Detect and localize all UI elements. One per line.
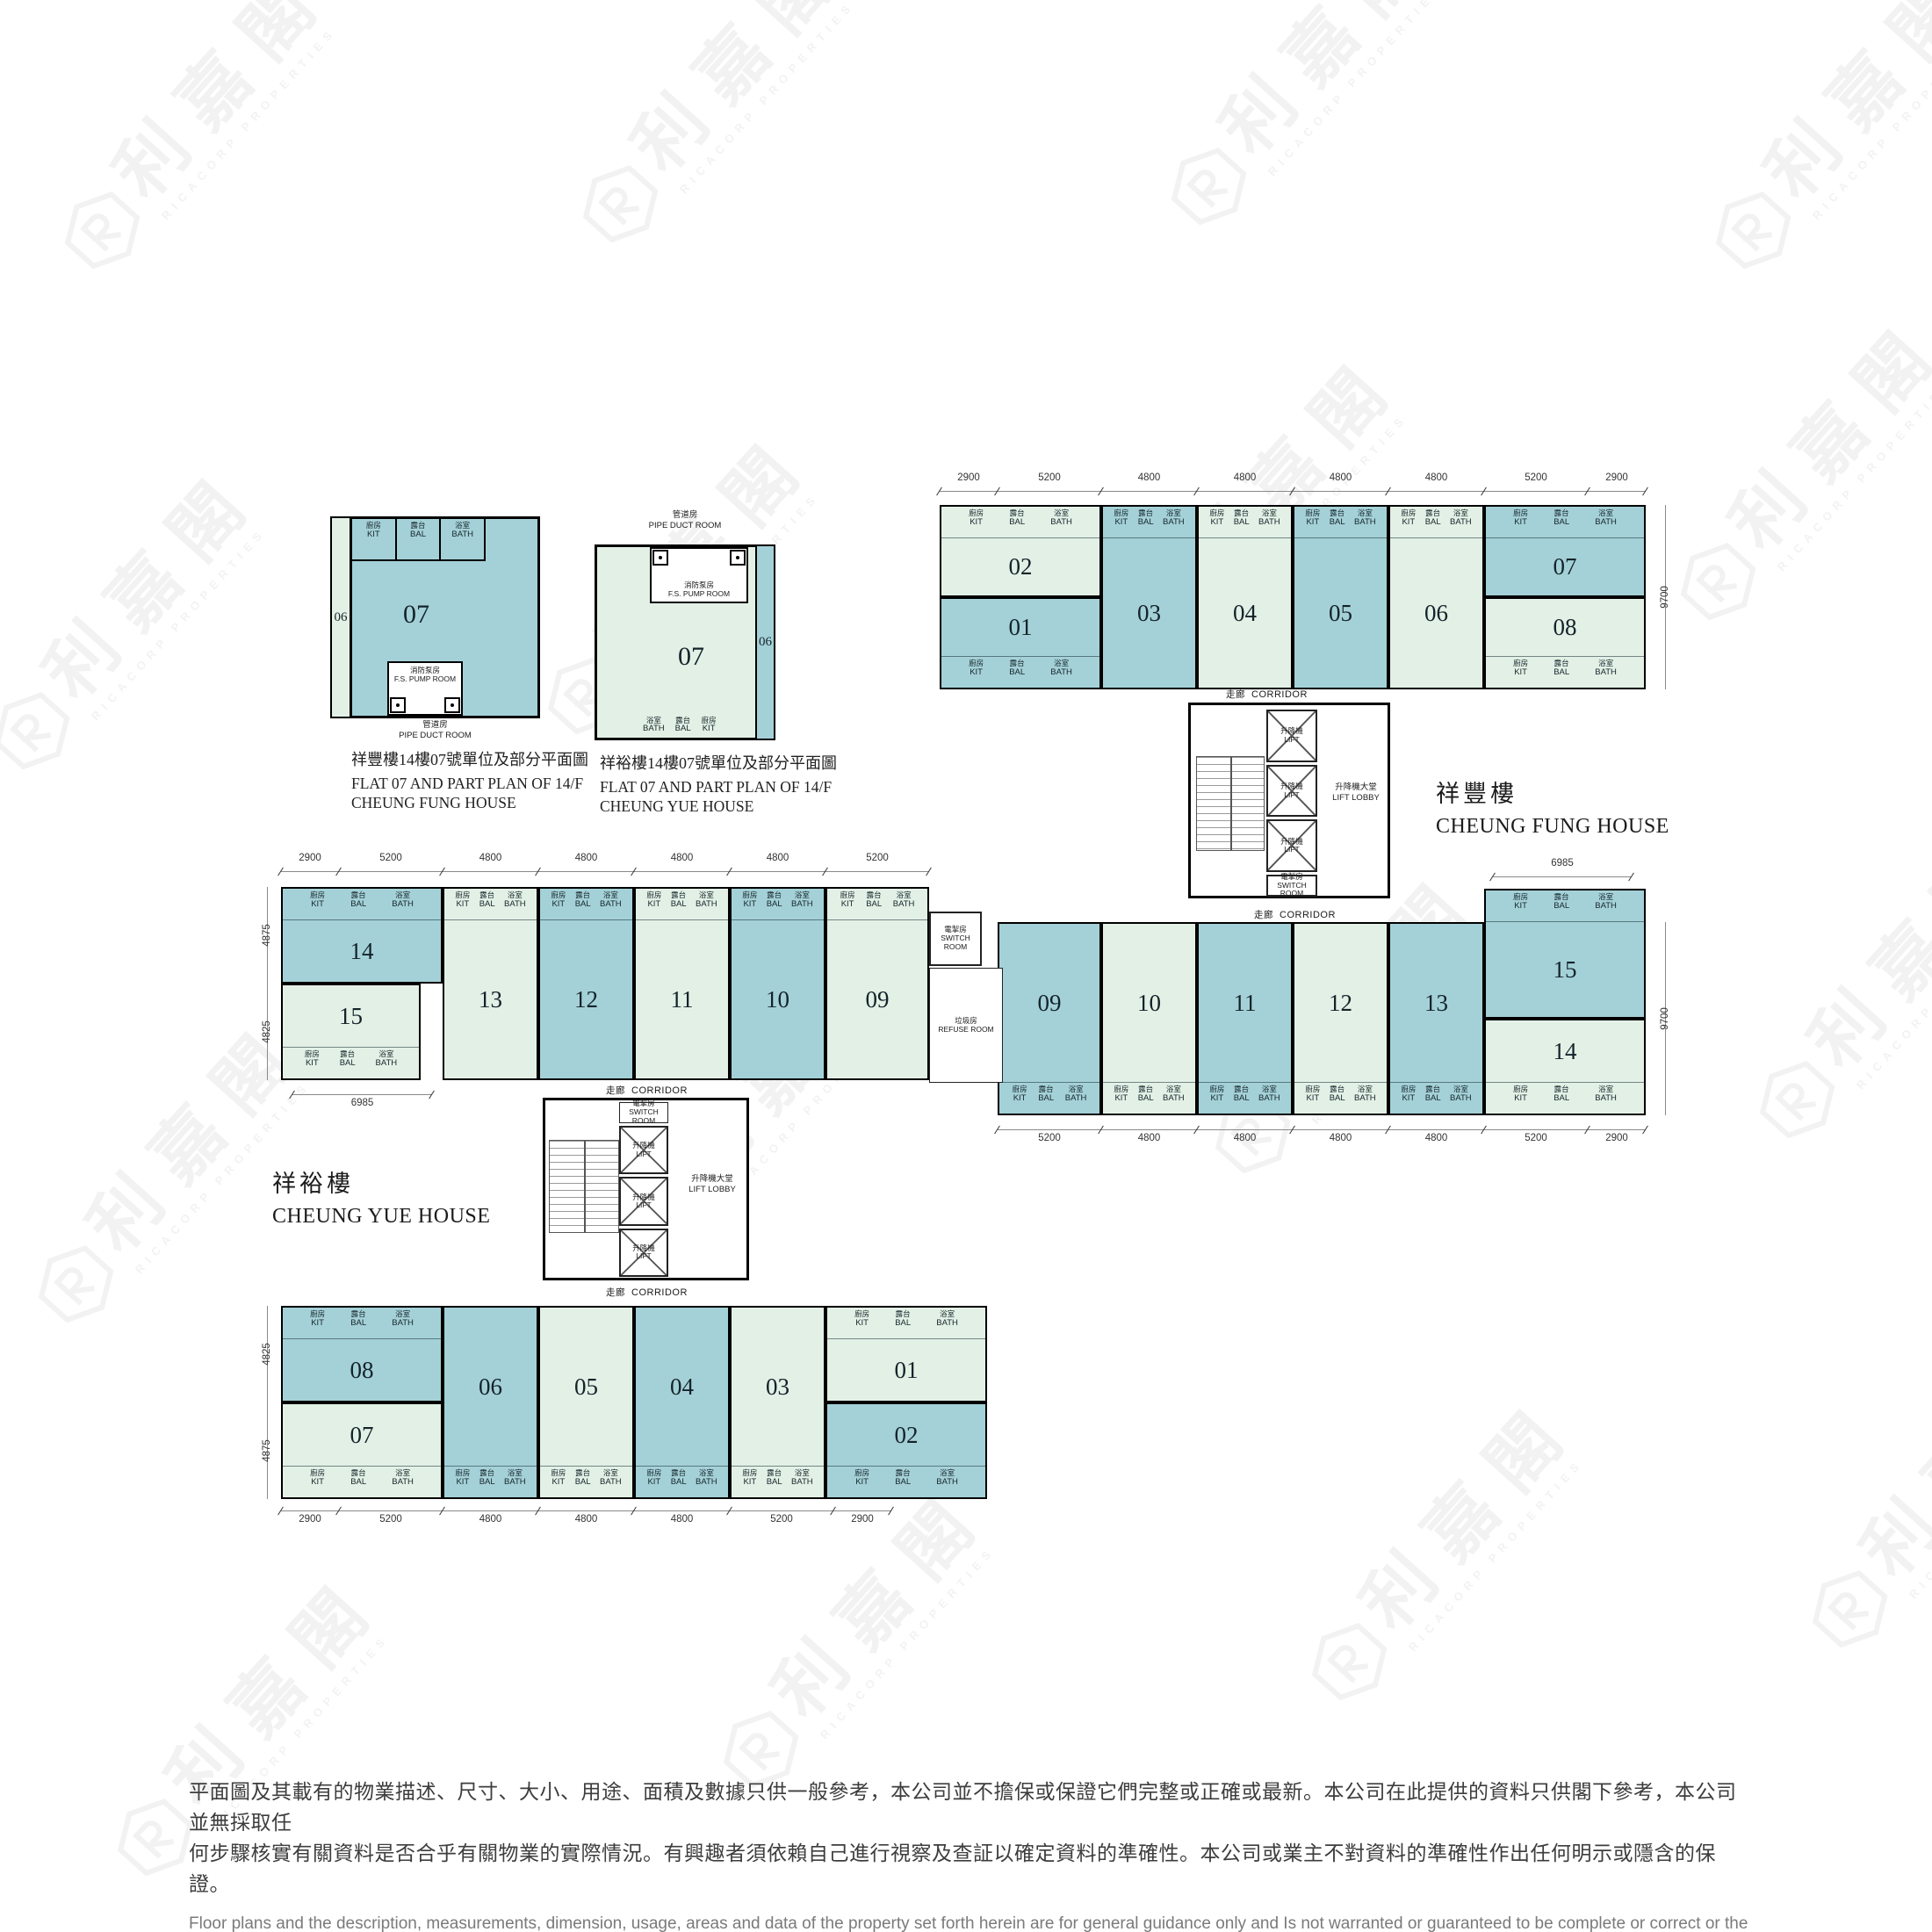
room-label-kit: 廚房KIT (455, 891, 470, 909)
pipe-duct (652, 550, 668, 566)
staircase (549, 1140, 619, 1233)
dimension-segment: 4800 (634, 1503, 730, 1517)
cyh-units-row-09-15: 廚房KIT露台BAL浴室BATH1415廚房KIT露台BAL浴室BATH廚房KI… (281, 887, 929, 1080)
room-label-bal: 露台BAL (1554, 1085, 1569, 1103)
room-label-bath: 浴室BATH (1065, 1085, 1087, 1103)
dimension-left: 4875 (260, 887, 274, 984)
bal-label: 露台BAL (410, 522, 426, 539)
dimension-segment: 5200 (1484, 484, 1588, 498)
unit-14: 14廚房KIT露台BAL浴室BATH (1484, 1019, 1646, 1115)
switch-room: 電掣房SWITCH ROOM (619, 1102, 668, 1123)
dimension-segment: 2900 (281, 1503, 339, 1517)
watermark-latin: RICACORP PROPERTIES (89, 507, 285, 723)
service-band: 廚房KIT 露台BAL 浴室BATH (352, 519, 486, 561)
unit-number: 04 (636, 1308, 728, 1466)
room-label-bath: 浴室BATH (1050, 509, 1072, 527)
unit-number: 11 (1199, 924, 1291, 1082)
room-label-kit: 廚房KIT (742, 1469, 757, 1487)
room-label-bath: 浴室BATH (504, 891, 526, 909)
dimension-segment: 4800 (634, 864, 730, 878)
watermark-latin: RICACORP PROPERTIES (1854, 876, 1932, 1092)
room-label-bath: 浴室BATH (696, 891, 717, 909)
room-label-bath: 浴室BATH (1163, 509, 1185, 527)
watermark-cjk: 利嘉閣 (32, 456, 271, 710)
unit-12: 廚房KIT露台BAL浴室BATH12 (538, 887, 634, 1080)
dimension-segment: 5200 (998, 1122, 1101, 1136)
watermark-cjk: 利嘉閣 (1719, 306, 1932, 561)
unit-10: 10廚房KIT露台BAL浴室BATH (1101, 922, 1197, 1115)
dimension-right: 9700 (1658, 922, 1672, 1115)
partial-plan-cheung-fung: 06 廚房KIT 露台BAL 浴室BATH 07 消防泵房 F.S. PUMP … (330, 516, 540, 718)
balcony-service-strip: 廚房KIT露台BAL浴室BATH (540, 889, 632, 920)
pipe-duct (730, 550, 746, 566)
unit-11: 11廚房KIT露台BAL浴室BATH (1197, 922, 1293, 1115)
unit-number: 15 (283, 985, 419, 1047)
dimension-string: 5200480048004800480052002900 (998, 1122, 1646, 1136)
unit-02: 02廚房KIT露台BAL浴室BATH (825, 1402, 987, 1499)
room-label-bath: 浴室BATH (392, 1310, 414, 1328)
watermark-cjk: 利嘉閣 (1754, 0, 1932, 210)
dimension-segment: 2900 (281, 864, 339, 878)
unit-number: 02 (941, 538, 1099, 595)
room-label-kit: 廚房KIT (1401, 1085, 1416, 1103)
dimension-segment: 2900 (940, 484, 998, 498)
lift-label: 升降機LIFT (1268, 711, 1316, 761)
room-label-kit: 廚房KIT (1305, 1085, 1320, 1103)
ricacorp-logo-icon (567, 150, 674, 256)
unit-08: 08廚房KIT露台BAL浴室BATH (1484, 597, 1646, 689)
corridor-label: 走廊CORRIDOR (1254, 908, 1336, 921)
dimension-segment: 2900 (833, 1503, 891, 1517)
unit-05: 廚房KIT露台BAL浴室BATH05 (1293, 505, 1388, 689)
unit-05: 05廚房KIT露台BAL浴室BATH (538, 1306, 634, 1499)
dimension-segment: 5200 (339, 1503, 443, 1517)
room-label-bal: 露台BAL (1038, 1085, 1054, 1103)
balcony-service-strip: 廚房KIT露台BAL浴室BATH (1199, 1082, 1291, 1114)
disclaimer-zh-line: 何步驟核實有關資料是否合乎有關物業的實際情況。有興趣者須依賴自己進行視察及查証以… (189, 1838, 1750, 1900)
unit-number: 12 (1294, 924, 1387, 1082)
room-label-bath: 浴室BATH (1595, 509, 1617, 527)
balcony-service-strip: 廚房KIT露台BAL浴室BATH (827, 1308, 985, 1339)
bath-label: 浴室BATH (643, 717, 665, 734)
room-label-bath: 浴室BATH (1450, 509, 1472, 527)
room-label-bal: 露台BAL (575, 1469, 591, 1487)
dimension-segment: 4800 (1197, 484, 1293, 498)
room-label-bath: 浴室BATH (936, 1469, 958, 1487)
corridor-label: 走廊CORRIDOR (606, 1286, 688, 1299)
room-label-kit: 廚房KIT (305, 1050, 320, 1068)
balcony-service-strip: 廚房KIT露台BAL浴室BATH (444, 889, 537, 920)
balcony-service-strip: 廚房KIT露台BAL浴室BATH (1486, 1082, 1644, 1114)
unit-number: 12 (540, 920, 632, 1078)
balcony-service-strip: 廚房KIT露台BAL浴室BATH (540, 1466, 632, 1497)
watermark-logo: 利嘉閣RICACORP PROPERTIES (1150, 0, 1462, 244)
room-label-bal: 露台BAL (895, 1310, 911, 1328)
watermark-logo: 利嘉閣RICACORP PROPERTIES (1791, 1334, 1932, 1666)
room-label-bal: 露台BAL (671, 891, 687, 909)
watermark-cjk: 利嘉閣 (1209, 0, 1448, 166)
unit-number: 06 (1390, 538, 1482, 688)
dimension-segment: 4800 (1101, 484, 1197, 498)
lift-shaft: 升降機LIFT (619, 1126, 668, 1174)
bath-label: 浴室BATH (451, 522, 473, 539)
dimension-segment: 5200 (998, 484, 1101, 498)
watermark-latin: RICACORP PROPERTIES (1907, 1385, 1932, 1601)
unit-number: 14 (283, 920, 441, 982)
room-label-kit: 廚房KIT (646, 1469, 661, 1487)
balcony-service-strip: 廚房KIT露台BAL浴室BATH (283, 1047, 419, 1078)
lift-shaft: 升降機LIFT (1266, 819, 1317, 872)
room-label-kit: 廚房KIT (969, 660, 984, 677)
room-label-bath: 浴室BATH (1595, 1085, 1617, 1103)
room-label-bal: 露台BAL (1138, 509, 1154, 527)
unit-number: 04 (1199, 538, 1291, 688)
unit-number: 13 (444, 920, 537, 1078)
room-label-bath: 浴室BATH (1050, 660, 1072, 677)
dimension-string: 6985 (1493, 869, 1632, 883)
room-label-kit: 廚房KIT (1209, 509, 1224, 527)
unit-06-sliver: 06 (330, 516, 351, 718)
room-label-bath: 浴室BATH (600, 891, 622, 909)
lift-label: 升降機LIFT (1268, 821, 1316, 870)
room-label-bath: 浴室BATH (392, 1469, 414, 1487)
unit-13: 13廚房KIT露台BAL浴室BATH (1388, 922, 1484, 1115)
room-label-bath: 浴室BATH (893, 891, 915, 909)
caption-cheung-yue-partial: 祥裕樓14樓07號單位及部分平面圖 FLAT 07 AND PART PLAN … (600, 751, 854, 816)
ricacorp-logo-icon (1797, 1555, 1903, 1662)
room-label-bath: 浴室BATH (504, 1469, 526, 1487)
unit-07: 07廚房KIT露台BAL浴室BATH (281, 1402, 443, 1499)
floor-plan-sheet: 利嘉閣RICACORP PROPERTIES利嘉閣RICACORP PROPER… (0, 0, 1932, 1932)
staircase (1196, 756, 1265, 851)
corridor-label: 走廊CORRIDOR (606, 1084, 688, 1097)
ricacorp-logo-icon (1700, 177, 1806, 283)
dimension-segment: 5200 (825, 864, 929, 878)
pipe-duct (390, 697, 406, 713)
balcony-service-strip: 廚房KIT露台BAL浴室BATH (732, 1466, 824, 1497)
room-label-bath: 浴室BATH (600, 1469, 622, 1487)
unit-number: 01 (827, 1339, 985, 1401)
room-label-kit: 廚房KIT (1114, 1085, 1128, 1103)
dimension-string: 29005200480048004800480052002900 (940, 484, 1646, 498)
watermark-logo: 利嘉閣RICACORP PROPERTIES (44, 0, 356, 288)
dimension-left: 4825 (260, 984, 274, 1080)
unit-number: 11 (636, 920, 728, 1078)
unit-06-sliver: 06 (755, 544, 775, 740)
room-label-bath: 浴室BATH (1450, 1085, 1472, 1103)
room-label-bath: 浴室BATH (936, 1310, 958, 1328)
watermark-cjk: 利嘉閣 (1798, 825, 1932, 1079)
disclaimer: 平面圖及其載有的物業描述、尺寸、大小、用途、面積及數據只供一般參考，本公司並不擔… (189, 1777, 1750, 1932)
unit-number: 08 (1486, 599, 1644, 656)
unit-number: 03 (1103, 538, 1195, 688)
unit-number: 13 (1390, 924, 1482, 1082)
balcony-service-strip: 廚房KIT露台BAL浴室BATH (999, 1082, 1099, 1114)
room-label-bal: 露台BAL (1554, 893, 1569, 911)
room-label-kit: 廚房KIT (310, 1469, 325, 1487)
unit-10: 廚房KIT露台BAL浴室BATH10 (730, 887, 825, 1080)
watermark-latin: RICACORP PROPERTIES (1810, 6, 1932, 222)
cfh-units-row-01-08: 廚房KIT露台BAL浴室BATH0201廚房KIT露台BAL浴室BATH廚房KI… (940, 505, 1646, 689)
balcony-service-strip: 廚房KIT露台BAL浴室BATH (636, 1466, 728, 1497)
room-label-bal: 露台BAL (895, 1469, 911, 1487)
unit-14: 廚房KIT露台BAL浴室BATH14 (281, 887, 443, 984)
unit-number: 07 (1486, 538, 1644, 595)
ricacorp-logo-icon (1156, 133, 1262, 239)
dimension-segment: 4800 (1293, 484, 1388, 498)
lift-label: 升降機LIFT (1268, 767, 1316, 816)
building-name-cheung-fung: 祥豐樓 CHEUNG FUNG HOUSE (1436, 775, 1669, 839)
room-label-bath: 浴室BATH (376, 1050, 398, 1068)
watermark-cjk: 利嘉閣 (621, 0, 860, 184)
lift-shaft: 升降機LIFT (619, 1229, 668, 1277)
lift-shaft: 升降機LIFT (1266, 710, 1317, 762)
room-label-bath: 浴室BATH (1258, 1085, 1280, 1103)
room-label-bal: 露台BAL (350, 1310, 366, 1328)
ricacorp-logo-icon (23, 1230, 129, 1337)
unit-stack: 廚房KIT露台BAL浴室BATH1415廚房KIT露台BAL浴室BATH (281, 887, 443, 1080)
room-label-bath: 浴室BATH (791, 1469, 813, 1487)
room-label-bath: 浴室BATH (791, 891, 813, 909)
unit-number: 01 (941, 599, 1099, 656)
fs-pump-room: 消防泵房 F.S. PUMP ROOM (387, 661, 463, 716)
balcony-service-strip: 廚房KIT露台BAL浴室BATH (941, 507, 1099, 538)
room-label-kit: 廚房KIT (455, 1469, 470, 1487)
dimension-segment: 4800 (443, 864, 538, 878)
unit-number: 07 (403, 600, 429, 630)
cyh-units-row-01-08: 廚房KIT露台BAL浴室BATH0807廚房KIT露台BAL浴室BATH06廚房… (281, 1306, 987, 1499)
unit-01: 01廚房KIT露台BAL浴室BATH (940, 597, 1101, 689)
dimension-segment: 2900 (1588, 484, 1646, 498)
unit-09: 09廚房KIT露台BAL浴室BATH (998, 922, 1101, 1115)
watermark-cjk: 利嘉閣 (1350, 1387, 1589, 1641)
unit-03: 廚房KIT露台BAL浴室BATH03 (1101, 505, 1197, 689)
unit-stack: 廚房KIT露台BAL浴室BATH0102廚房KIT露台BAL浴室BATH (825, 1306, 987, 1499)
pipe-duct (444, 697, 460, 713)
unit-stack: 廚房KIT露台BAL浴室BATH0201廚房KIT露台BAL浴室BATH (940, 505, 1101, 689)
unit-stack: 廚房KIT露台BAL浴室BATH1514廚房KIT露台BAL浴室BATH (1484, 922, 1646, 1115)
room-label-kit: 廚房KIT (310, 891, 325, 909)
lift-shafts: 升降機LIFT升降機LIFT升降機LIFT (619, 1126, 668, 1277)
room-label-kit: 廚房KIT (854, 1310, 869, 1328)
watermark-cjk: 利嘉閣 (103, 0, 342, 210)
unit-number: 10 (1103, 924, 1195, 1082)
room-label-bal: 露台BAL (1330, 509, 1345, 527)
fs-pump-room: 消防泵房 F.S. PUMP ROOM (650, 547, 748, 603)
dimension-segment: 6985 (1493, 869, 1632, 883)
room-label-bath: 浴室BATH (696, 1469, 717, 1487)
partial-plan-cheung-yue: 消防泵房 F.S. PUMP ROOM 07 浴室BATH 露台BAL 廚房KI… (595, 544, 775, 740)
room-label-bal: 露台BAL (1009, 509, 1025, 527)
kit-label: 廚房KIT (366, 522, 381, 539)
unit-number: 03 (732, 1308, 824, 1466)
unit-04: 04廚房KIT露台BAL浴室BATH (634, 1306, 730, 1499)
balcony-service-strip: 廚房KIT露台BAL浴室BATH (1390, 1082, 1482, 1114)
balcony-service-strip: 廚房KIT露台BAL浴室BATH (1390, 507, 1482, 538)
pipe-duct-room-label: 管道房 PIPE DUCT ROOM (628, 510, 742, 531)
watermark-latin: RICACORP PROPERTIES (677, 0, 874, 196)
dimension-left: 4875 (260, 1402, 274, 1499)
unit-stack: 廚房KIT露台BAL浴室BATH0708廚房KIT露台BAL浴室BATH (1484, 505, 1646, 689)
balcony-service-strip: 廚房KIT露台BAL浴室BATH (1199, 507, 1291, 538)
dimension-segment: 5200 (339, 864, 443, 878)
room-label-bal: 露台BAL (1425, 509, 1441, 527)
dimension-segment: 4800 (538, 1503, 634, 1517)
unit-number: 06 (444, 1308, 537, 1466)
balcony-service-strip: 廚房KIT露台BAL浴室BATH (1294, 507, 1387, 538)
room-label-kit: 廚房KIT (840, 891, 855, 909)
unit-12: 12廚房KIT露台BAL浴室BATH (1293, 922, 1388, 1115)
room-label-kit: 廚房KIT (1305, 509, 1320, 527)
unit-number: 02 (827, 1404, 985, 1466)
lift-label: 升降機LIFT (621, 1230, 667, 1275)
unit-13: 廚房KIT露台BAL浴室BATH13 (443, 887, 538, 1080)
balcony-service-strip: 廚房KIT露台BAL浴室BATH (1103, 507, 1195, 538)
bal-label: 露台BAL (675, 717, 691, 734)
dimension-segment: 2900 (1588, 1122, 1646, 1136)
unit-number: 05 (540, 1308, 632, 1466)
dimension-segment: 4800 (1388, 484, 1484, 498)
room-label-kit: 廚房KIT (1513, 1085, 1528, 1103)
room-label-bath: 浴室BATH (1354, 509, 1376, 527)
unit-number: 15 (1486, 922, 1644, 1017)
unit-07-outline: 消防泵房 F.S. PUMP ROOM 07 浴室BATH 露台BAL 廚房KI… (595, 544, 775, 740)
watermark-latin: RICACORP PROPERTIES (1775, 357, 1932, 573)
room-label-bal: 露台BAL (1330, 1085, 1345, 1103)
unit-stack: 廚房KIT露台BAL浴室BATH0807廚房KIT露台BAL浴室BATH (281, 1306, 443, 1499)
lift-label: 升降機LIFT (621, 1128, 667, 1172)
room-label-kit: 廚房KIT (551, 1469, 566, 1487)
unit-number: 09 (827, 920, 927, 1078)
room-label-bal: 露台BAL (1554, 509, 1569, 527)
watermark-logo: 利嘉閣RICACORP PROPERTIES (1660, 306, 1932, 638)
room-label-kit: 廚房KIT (1114, 509, 1128, 527)
unit-06: 廚房KIT露台BAL浴室BATH06 (1388, 505, 1484, 689)
room-label-bal: 露台BAL (767, 891, 782, 909)
pipe-duct-room-label: 管道房 PIPE DUCT ROOM (330, 720, 540, 741)
room-label-kit: 廚房KIT (646, 891, 661, 909)
ricacorp-logo-icon (0, 677, 85, 783)
balcony-service-strip: 廚房KIT露台BAL浴室BATH (1486, 656, 1644, 688)
dimension-right: 9700 (1658, 505, 1672, 689)
room-label-kit: 廚房KIT (1513, 893, 1528, 911)
room-label-bal: 露台BAL (671, 1469, 687, 1487)
room-label-bath: 浴室BATH (1354, 1085, 1376, 1103)
balcony-service-strip: 廚房KIT露台BAL浴室BATH (283, 1466, 441, 1497)
room-label-kit: 廚房KIT (1401, 509, 1416, 527)
unit-01: 廚房KIT露台BAL浴室BATH01 (825, 1306, 987, 1402)
room-label-bath: 浴室BATH (1163, 1085, 1185, 1103)
dimension-segment: 6985 (292, 1087, 432, 1101)
refuse-room: 垃圾房REFUSE ROOM (929, 968, 1003, 1083)
unit-02: 廚房KIT露台BAL浴室BATH02 (940, 505, 1101, 597)
room-label-kit: 廚房KIT (1209, 1085, 1224, 1103)
room-label-bath: 浴室BATH (1595, 893, 1617, 911)
unit-06: 06廚房KIT露台BAL浴室BATH (443, 1306, 538, 1499)
room-label-kit: 廚房KIT (1513, 509, 1528, 527)
dimension-segment: 4800 (1197, 1122, 1293, 1136)
watermark-logo: 利嘉閣RICACORP PROPERTIES (703, 1474, 1014, 1806)
unit-09: 廚房KIT露台BAL浴室BATH09 (825, 887, 929, 1080)
unit-15: 15廚房KIT露台BAL浴室BATH (281, 984, 421, 1080)
unit-04: 廚房KIT露台BAL浴室BATH04 (1197, 505, 1293, 689)
disclaimer-en-line: Floor plans and the description, measure… (189, 1911, 1750, 1932)
kit-label: 廚房KIT (702, 717, 717, 734)
lift-shafts: 升降機LIFT升降機LIFT升降機LIFT (1266, 710, 1317, 872)
unit-number: 07 (283, 1404, 441, 1466)
balcony-service-strip: 廚房KIT露台BAL浴室BATH (941, 656, 1099, 688)
watermark-logo: 利嘉閣RICACORP PROPERTIES (1695, 0, 1932, 288)
ricacorp-logo-icon (1296, 1608, 1402, 1714)
unit-number: 09 (999, 924, 1099, 1082)
balcony-service-strip: 廚房KIT露台BAL浴室BATH (1486, 507, 1644, 538)
unit-number: 08 (283, 1339, 441, 1401)
ricacorp-logo-icon (1744, 1046, 1850, 1152)
dimension-segment: 4800 (443, 1503, 538, 1517)
room-label-kit: 廚房KIT (1013, 1085, 1027, 1103)
balcony-service-strip: 廚房KIT露台BAL浴室BATH (827, 889, 927, 920)
balcony-service-strip: 廚房KIT露台BAL浴室BATH (283, 1308, 441, 1339)
balcony-service-strip: 廚房KIT露台BAL浴室BATH (1486, 890, 1644, 922)
balcony-service-strip: 廚房KIT露台BAL浴室BATH (444, 1466, 537, 1497)
room-label-bal: 露台BAL (1234, 1085, 1250, 1103)
unit-07-outline: 廚房KIT 露台BAL 浴室BATH 07 消防泵房 F.S. PUMP ROO… (350, 516, 540, 718)
ricacorp-logo-icon (1665, 528, 1771, 634)
unit-03: 03廚房KIT露台BAL浴室BATH (730, 1306, 825, 1499)
balcony-service-strip: 廚房KIT露台BAL浴室BATH (636, 889, 728, 920)
dimension-segment: 4800 (538, 864, 634, 878)
building-name-cheung-yue: 祥裕樓 CHEUNG YUE HOUSE (272, 1164, 490, 1229)
dimension-segment: 4800 (1101, 1122, 1197, 1136)
balcony-service-strip: 廚房KIT露台BAL浴室BATH (1294, 1082, 1387, 1114)
switch-room: 電掣房SWITCH ROOM (929, 912, 982, 966)
room-label-bal: 露台BAL (767, 1469, 782, 1487)
dimension-segment: 4800 (1388, 1122, 1484, 1136)
switch-room: 電掣房SWITCH ROOM (1266, 875, 1317, 897)
corridor-label: 走廊CORRIDOR (1226, 688, 1308, 701)
unit-08: 廚房KIT露台BAL浴室BATH08 (281, 1306, 443, 1402)
lift-label: 升降機LIFT (621, 1179, 667, 1223)
room-label-bal: 露台BAL (575, 891, 591, 909)
room-label-kit: 廚房KIT (854, 1469, 869, 1487)
watermark-logo: 利嘉閣RICACORP PROPERTIES (1739, 825, 1932, 1157)
watermark-latin: RICACORP PROPERTIES (818, 1525, 1014, 1741)
room-label-kit: 廚房KIT (1513, 660, 1528, 677)
room-label-kit: 廚房KIT (551, 891, 566, 909)
dimension-segment: 5200 (1484, 1122, 1588, 1136)
service-band: 浴室BATH 露台BAL 廚房KIT (643, 717, 717, 734)
watermark-logo: 利嘉閣RICACORP PROPERTIES (562, 0, 874, 262)
balcony-service-strip: 廚房KIT露台BAL浴室BATH (1103, 1082, 1195, 1114)
watermark-logo: 利嘉閣RICACORP PROPERTIES (0, 456, 285, 788)
room-label-bal: 露台BAL (1009, 660, 1025, 677)
room-label-bal: 露台BAL (1554, 660, 1569, 677)
unit-11: 廚房KIT露台BAL浴室BATH11 (634, 887, 730, 1080)
watermark-logo: 利嘉閣RICACORP PROPERTIES (1291, 1387, 1603, 1719)
dimension-segment: 4800 (730, 864, 825, 878)
room-label-kit: 廚房KIT (310, 1310, 325, 1328)
watermark-cjk: 利嘉閣 (1850, 1334, 1932, 1589)
dimension-string: 2900520048004800480052002900 (281, 1503, 891, 1517)
room-label-bal: 露台BAL (479, 891, 495, 909)
watermark-latin: RICACORP PROPERTIES (159, 6, 356, 222)
ricacorp-logo-icon (49, 177, 155, 283)
balcony-service-strip: 廚房KIT露台BAL浴室BATH (283, 889, 441, 920)
unit-number: 14 (1486, 1020, 1644, 1082)
room-label-bal: 露台BAL (1425, 1085, 1441, 1103)
dimension-segment: 4800 (1293, 1122, 1388, 1136)
watermark-latin: RICACORP PROPERTIES (1265, 0, 1462, 178)
